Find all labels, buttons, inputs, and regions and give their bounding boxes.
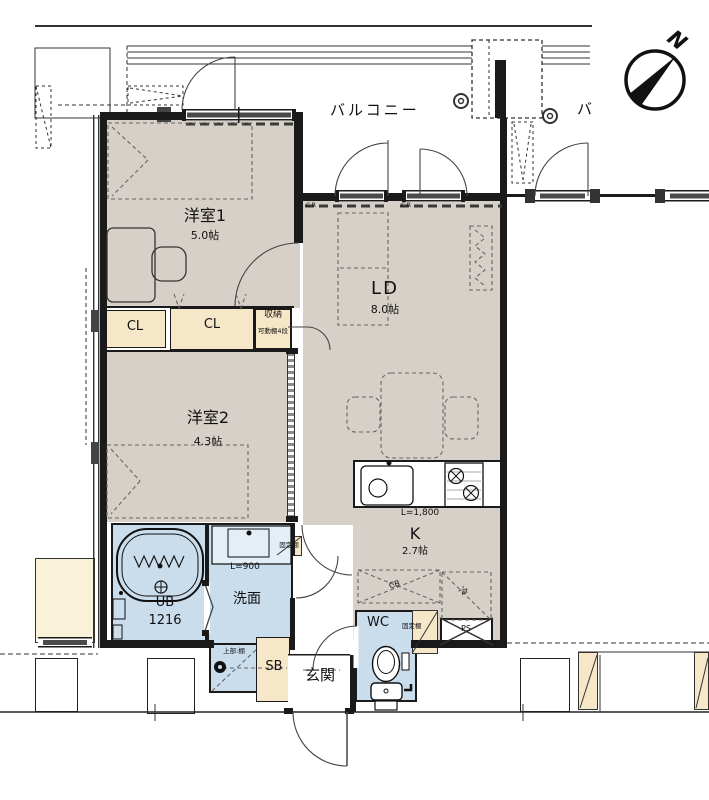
unit-bath-size: 1216 [135,614,195,627]
neighbor-balcony-label: バ [577,102,592,117]
kitchen-counter [353,460,503,508]
corridor-pillar-2 [147,658,195,714]
bedroom2-size: 4.3帖 [168,436,248,447]
closet1-label: CL [107,320,163,333]
bedroom1-size: 5.0帖 [170,230,240,241]
floorplan: バルコニー バ 洋室1 5.0帖 洋室2 4.3帖 LD 8.0帖 K 2.7帖… [0,0,709,800]
wc-fixed-shelf-box [412,610,438,654]
compass-icon [626,51,684,109]
bedroom2-name: 洋室2 [168,410,248,426]
compass-north-label: N [663,27,690,54]
balcony-label: バルコニー [330,103,420,118]
entrance-name: 玄関 [292,668,348,683]
window-neighbor-right-1 [535,190,590,202]
neighbor-door-right2 [694,652,709,710]
kitchen-name: K [390,526,440,542]
toilet-fixed-shelf: 固定棚 [402,623,422,630]
washroom-counter-length: L=900 [215,563,275,572]
toilet-name: WC [358,616,398,629]
curtain-rail-left: CR [306,202,317,209]
shuno-note: 可動棚4段 [253,328,293,335]
washroom-name: 洗面 [212,592,282,606]
living-dining-size: 8.0帖 [355,304,415,315]
kitchen-counter-length: L=1,800 [390,509,450,518]
corridor-pillar-1 [35,658,78,712]
unit-bath-room [111,523,207,648]
living-dining-name: LD [355,280,415,298]
kitchen-size: 2.7帖 [390,547,440,557]
sliding-door-track [287,353,295,520]
washroom-upper-shelf: 上部:棚 [212,648,256,655]
neighbor-door-right1 [578,652,598,710]
hall-fixed-shelf-label: 固定棚 [274,542,304,549]
closet2-label: CL [172,318,252,331]
neighbor-room-left [35,558,95,643]
pipe-space-mark: PS [448,625,484,633]
bedroom1-name: 洋室1 [170,208,240,224]
unit-bath-name: UB [135,596,195,609]
shuno-name: 収納 [255,311,291,320]
corridor-pillar-3 [520,658,570,712]
shoe-box-label: SB [258,660,290,673]
window-neighbor-right-2 [665,190,709,202]
curtain-rail-right: CR [401,202,412,209]
